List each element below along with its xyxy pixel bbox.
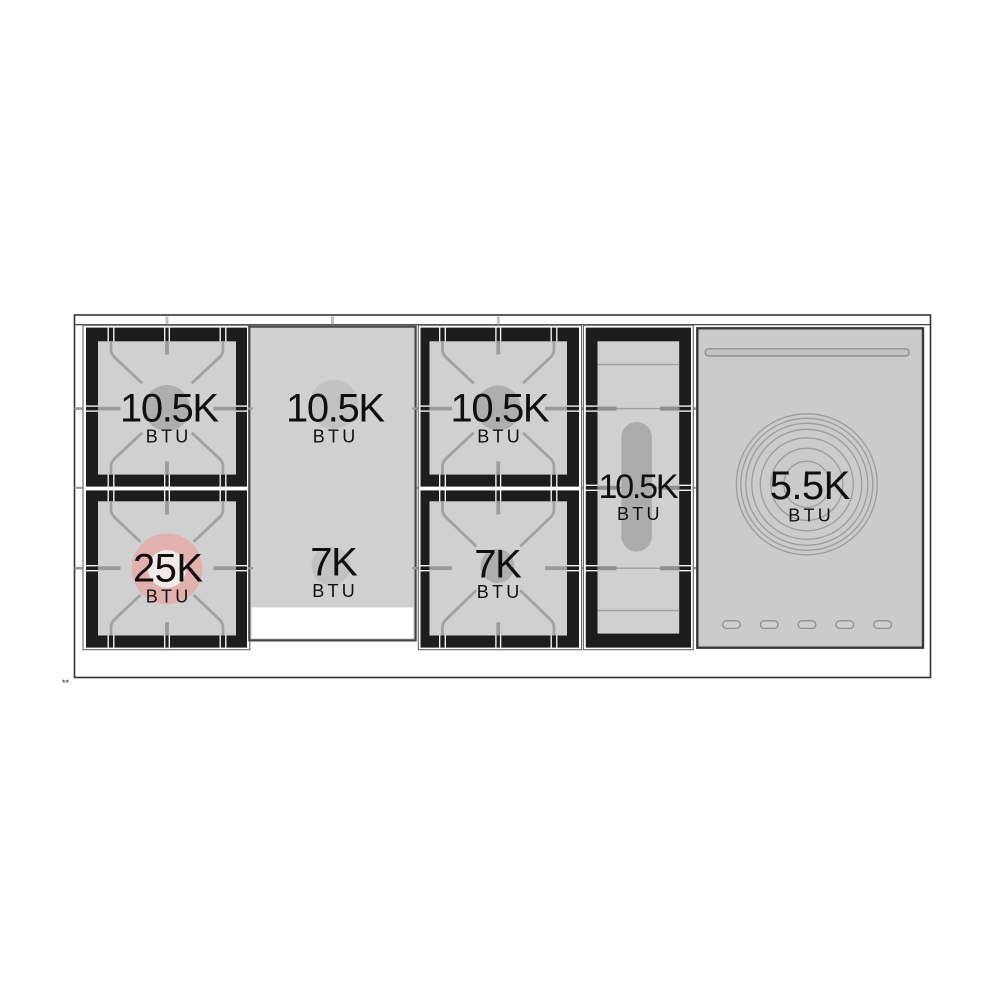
svg-text:BTU: BTU [146, 587, 189, 607]
svg-text:BTU: BTU [788, 506, 831, 526]
svg-text:BTU: BTU [617, 504, 660, 524]
svg-text:**: ** [62, 678, 70, 688]
svg-text:10.5K: 10.5K [599, 468, 679, 506]
svg-text:5.5K: 5.5K [770, 464, 851, 508]
svg-text:10.5K: 10.5K [120, 386, 219, 430]
svg-text:7K: 7K [474, 543, 522, 587]
svg-text:BTU: BTU [477, 426, 520, 446]
svg-text:7K: 7K [310, 541, 358, 585]
svg-text:BTU: BTU [146, 426, 189, 446]
svg-text:25K: 25K [133, 546, 203, 590]
svg-text:10.5K: 10.5K [451, 386, 550, 430]
svg-text:BTU: BTU [313, 426, 356, 446]
svg-text:BTU: BTU [477, 582, 520, 602]
svg-text:10.5K: 10.5K [286, 386, 385, 430]
svg-text:BTU: BTU [312, 581, 355, 601]
